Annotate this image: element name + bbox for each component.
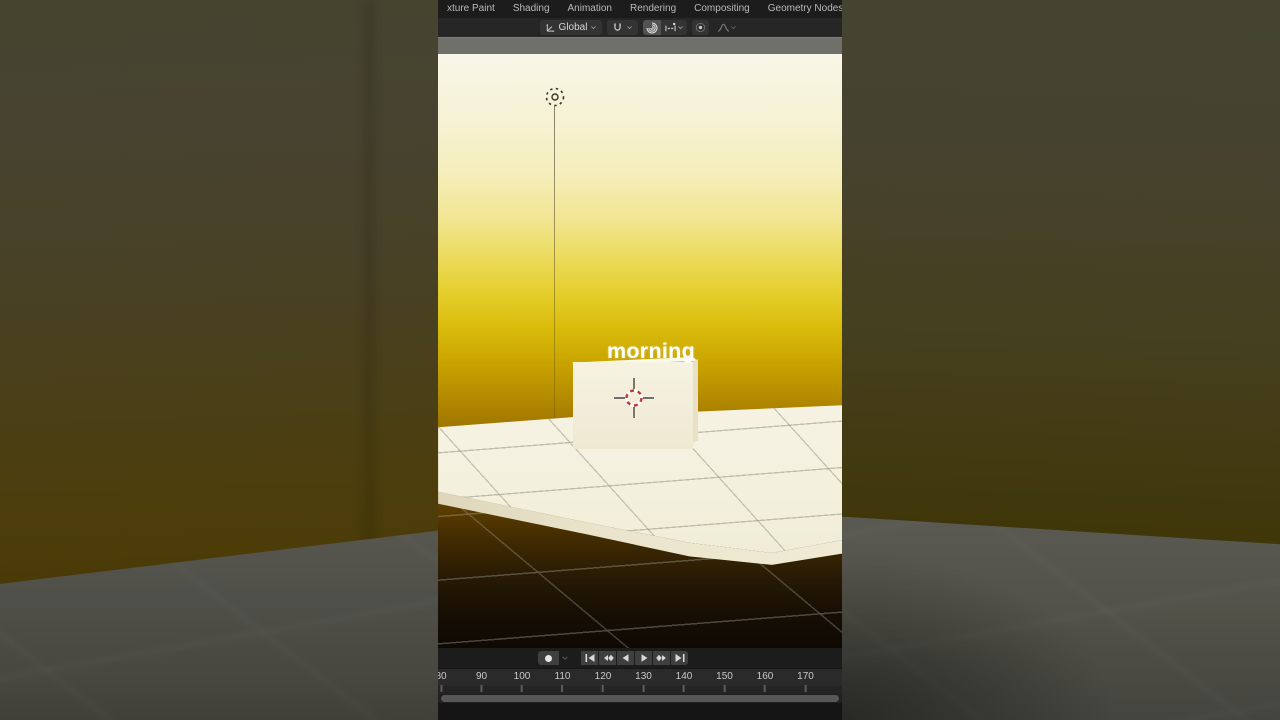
timeline-ruler[interactable]: 80 90 100 110 120 130 140 150 [438,668,842,694]
frame-tick: 110 [555,669,571,692]
snapping-dropdown[interactable] [607,20,638,35]
workspace-tab[interactable]: Shading [504,0,559,18]
falloff-dropdown[interactable] [714,20,740,35]
workspace-tabs-bar: xture PaintShadingAnimationRenderingComp… [438,0,842,18]
frame-number: 160 [757,669,774,685]
3d-viewport[interactable]: morning [438,54,842,648]
proportional-editing-group [643,20,687,35]
frame-number: 80 [438,669,447,685]
sun-lamp-beam-line [554,106,555,426]
playback-play-forward-button[interactable] [635,651,652,665]
workspace-tab[interactable]: xture Paint [438,0,504,18]
frame-tick: 120 [595,669,612,692]
blurred-grid-lines [0,498,438,720]
tick-mark [764,685,766,692]
snap-increment-icon [664,22,677,33]
frame-number: 150 [716,669,733,685]
frame-number: 100 [514,669,531,685]
playback-next-keyframe-button[interactable] [653,651,670,665]
frame-tick: 170 [797,669,814,692]
tick-mark [481,685,483,692]
area-divider[interactable] [438,37,842,54]
proportional-editing-toggle[interactable] [643,20,661,35]
proportional-spiral-icon [646,22,658,34]
snap-magnet-icon [612,22,623,33]
viewport-overlay-text: morning [607,339,695,364]
proportional-center-toggle[interactable] [692,20,709,35]
tick-mark [561,685,563,692]
tick-mark [440,685,442,692]
orientation-label: Global [559,22,588,33]
viewport-header: Global [438,18,842,37]
workspace-tab[interactable]: Animation [559,0,621,18]
frame-tick: 130 [635,669,652,692]
playback-prev-keyframe-button[interactable] [599,651,616,665]
workspace-tab[interactable]: Compositing [685,0,759,18]
frame-number: 90 [476,669,487,685]
timeline-scrollbar[interactable] [441,695,839,702]
playback-jump-last-button[interactable] [671,651,688,665]
transform-orientation-dropdown[interactable]: Global [540,20,603,35]
proportional-dot-icon [695,22,706,33]
blender-window: xture PaintShadingAnimationRenderingComp… [438,0,842,720]
sun-lamp-icon[interactable] [542,84,568,110]
tick-mark [602,685,604,692]
timeline-scroll-track [438,694,842,703]
transform-orientation-icon [545,22,556,33]
snap-increment-dropdown[interactable] [661,20,687,35]
cube-right-face [693,359,698,443]
frame-tick: 150 [716,669,733,692]
pillarbox-left-background [0,0,438,720]
tick-mark [643,685,645,692]
chevron-down-icon [626,24,633,31]
tick-mark [683,685,685,692]
vignette-overlay [842,0,1280,720]
playback-play-reverse-button[interactable] [617,651,634,665]
tick-mark [521,685,523,692]
timeline-footer [438,703,842,720]
auto-keying-button[interactable] [538,651,559,665]
frame-number: 130 [635,669,652,685]
chevron-down-icon [677,24,684,31]
frame-number: 110 [555,669,571,685]
chevron-down-icon [730,24,737,31]
frame-number: 170 [797,669,814,685]
frame-number: 140 [676,669,693,685]
playback-jump-first-button[interactable] [581,651,598,665]
workspace-tab[interactable]: Rendering [621,0,685,18]
frame-tick: 160 [757,669,774,692]
frame-tick: 100 [514,669,531,692]
playback-buttons [581,651,688,665]
falloff-curve-icon [717,22,730,33]
frame-tick: 140 [676,669,693,692]
chevron-down-icon [590,24,597,31]
tick-mark [724,685,726,692]
chevron-down-icon[interactable] [561,654,569,662]
tick-mark [805,685,807,692]
blurred-floor-left [0,498,438,720]
frame-number: 120 [595,669,612,685]
frame-tick: 90 [476,669,487,692]
timeline-controls-bar [438,648,842,668]
workspace-tab[interactable]: Geometry Nodes [759,0,842,18]
record-circle-icon [545,655,552,662]
frame-tick: 80 [438,669,447,692]
3d-cursor-icon [612,376,656,420]
pillarbox-right-background [842,0,1280,720]
